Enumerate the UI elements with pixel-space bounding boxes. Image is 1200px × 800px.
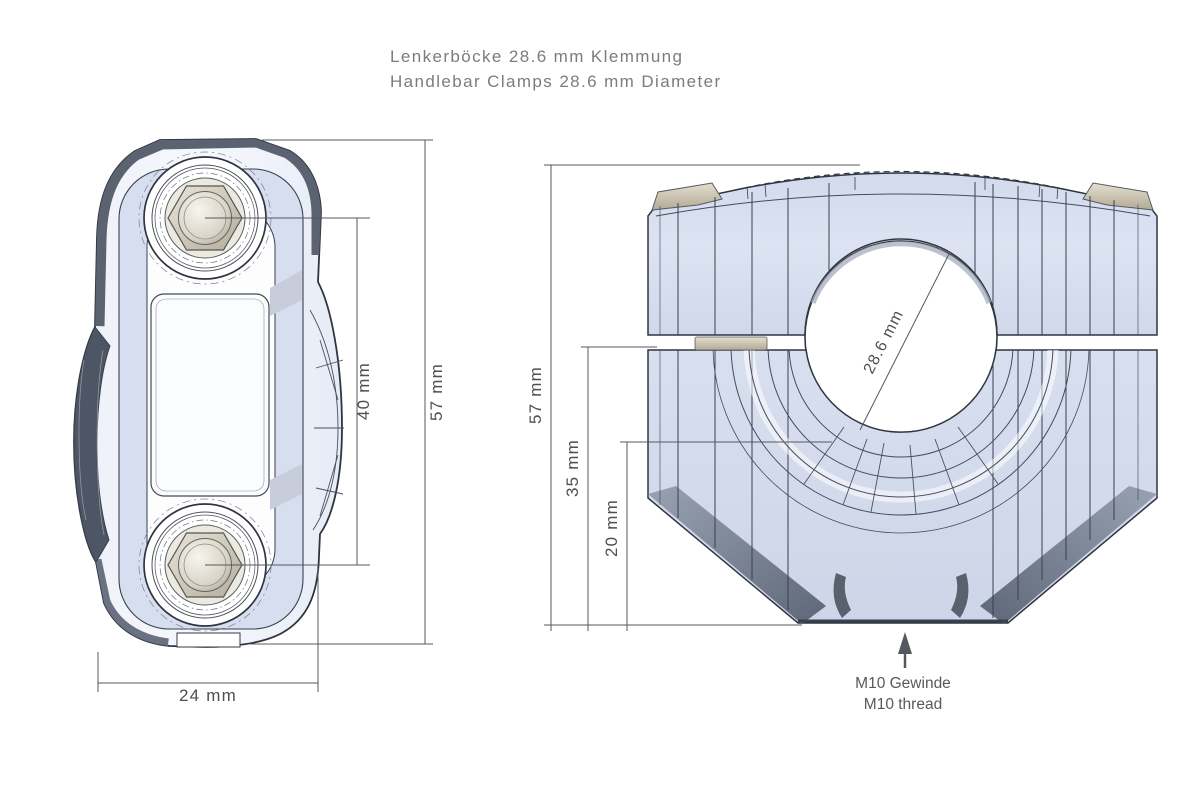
dim-24mm-label: 24 mm [179, 686, 237, 705]
dim-35mm-label: 35 mm [563, 439, 582, 497]
clamp-gap-washer [695, 337, 767, 350]
thread-arrow [898, 632, 912, 668]
top-view: 40 mm 57 mm 24 mm [74, 139, 446, 705]
thread-label-en: M10 thread [864, 696, 942, 713]
bottom-tab [177, 633, 240, 647]
center-face [151, 294, 269, 496]
drawing-title: Lenkerböcke 28.6 mm Klemmung Handlebar C… [390, 44, 722, 94]
dim-40mm-label: 40 mm [354, 362, 373, 420]
front-view: 28.6 mm 57 mm 35 mm 20 mm M10 Gewinde M1… [526, 157, 1157, 713]
engineering-drawing-canvas: 40 mm 57 mm 24 mm [0, 0, 1200, 800]
dim-20mm-label: 20 mm [602, 499, 621, 557]
drawing-title-en: Handlebar Clamps 28.6 mm Diameter [390, 69, 722, 94]
thread-label-de: M10 Gewinde [855, 675, 951, 692]
dim-57mm-front-label: 57 mm [526, 366, 545, 424]
drawing-page: Lenkerböcke 28.6 mm Klemmung Handlebar C… [0, 0, 1200, 800]
dim-57mm-left-label: 57 mm [427, 363, 446, 421]
drawing-title-de: Lenkerböcke 28.6 mm Klemmung [390, 44, 722, 69]
